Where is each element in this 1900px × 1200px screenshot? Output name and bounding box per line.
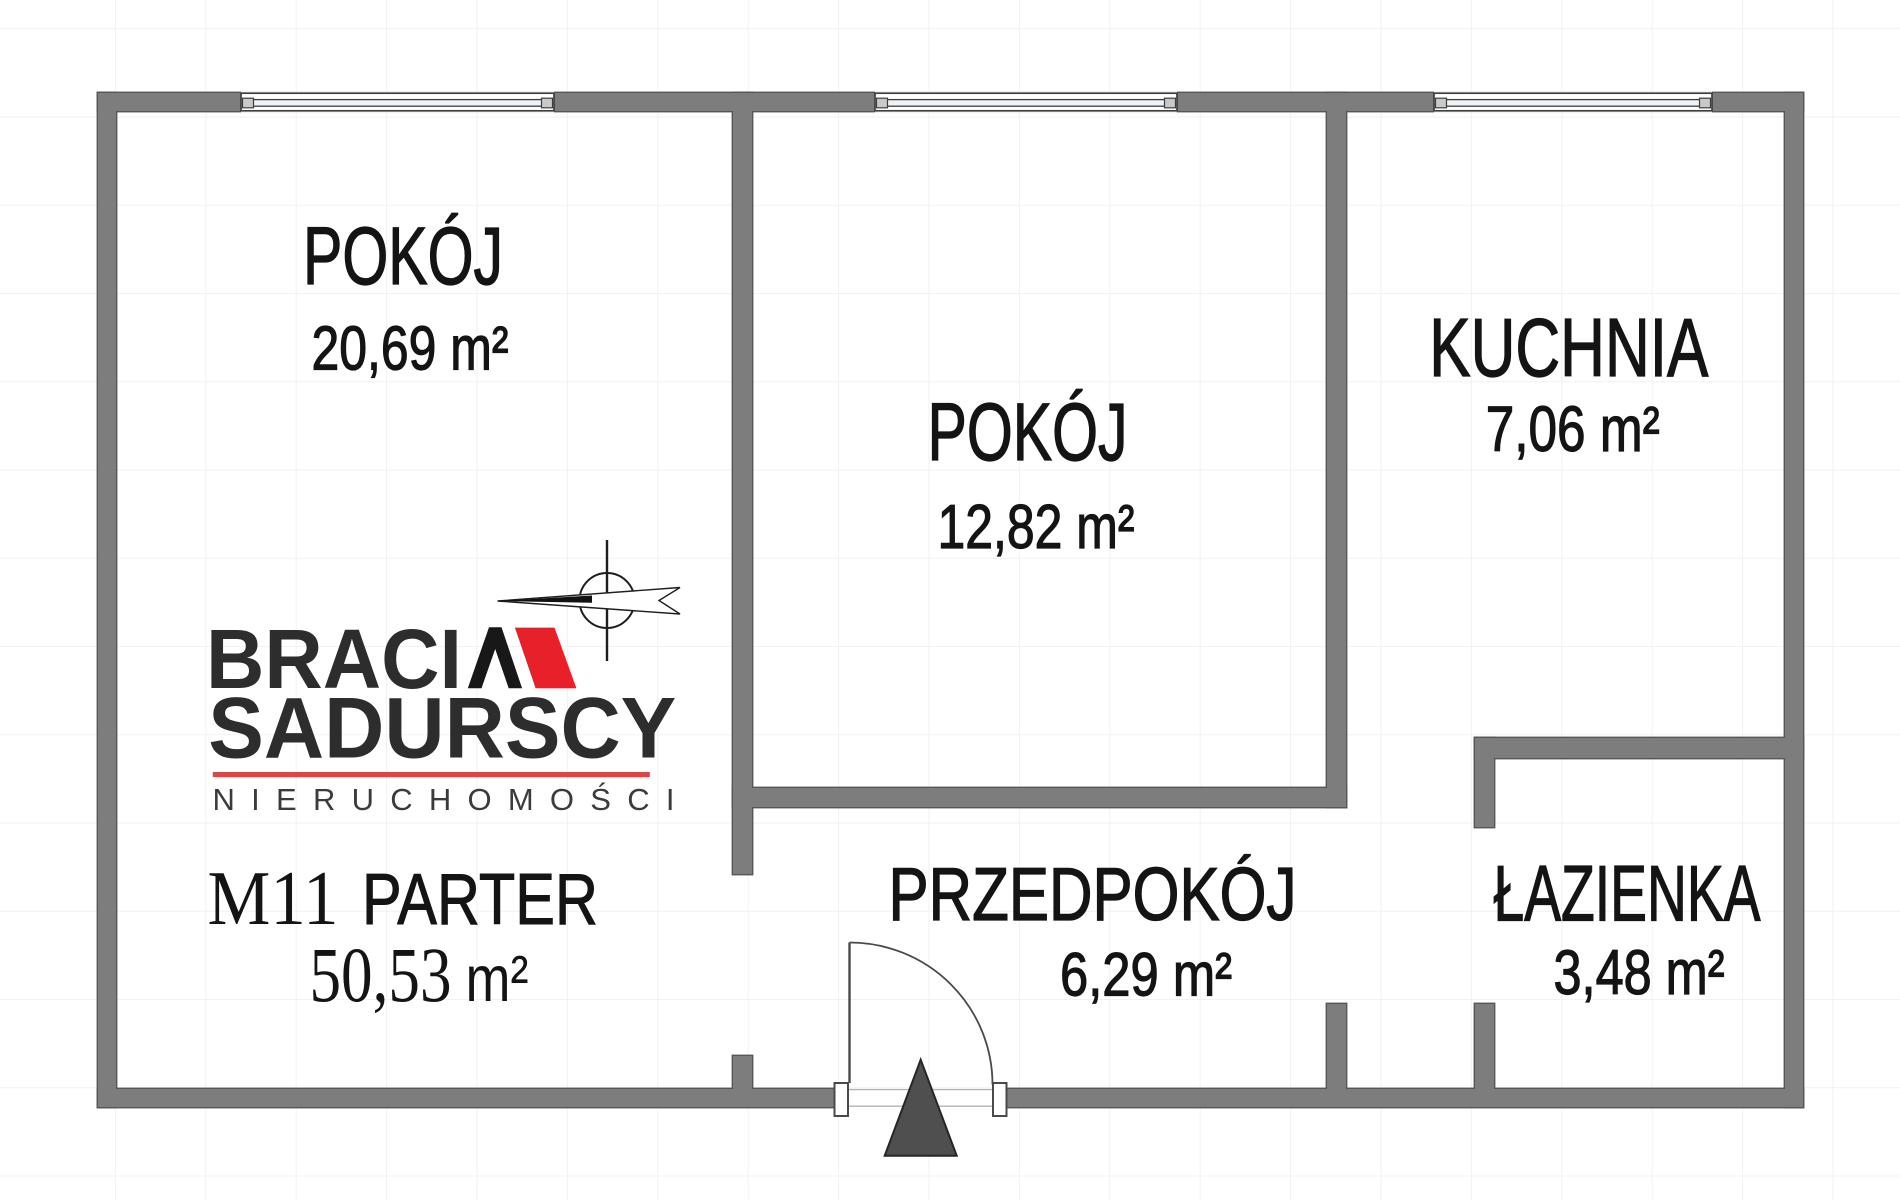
svg-text:POKÓJ: POKÓJ xyxy=(928,387,1128,478)
svg-text:m²: m² xyxy=(466,942,529,1015)
svg-text:NIERUCHOMOŚCI: NIERUCHOMOŚCI xyxy=(213,781,675,817)
svg-text:PARTER: PARTER xyxy=(362,860,598,940)
svg-text:KUCHNIA: KUCHNIA xyxy=(1429,302,1708,394)
svg-text:50,53: 50,53 xyxy=(310,931,452,1018)
svg-text:12,82 m²: 12,82 m² xyxy=(938,493,1135,562)
svg-text:M11: M11 xyxy=(208,855,339,941)
svg-text:POKÓJ: POKÓJ xyxy=(303,211,503,302)
svg-text:7,06 m²: 7,06 m² xyxy=(1486,393,1660,465)
svg-text:ŁAZIENKA: ŁAZIENKA xyxy=(1494,850,1761,938)
svg-text:20,69 m²: 20,69 m² xyxy=(312,315,509,384)
svg-text:SADURSCY: SADURSCY xyxy=(208,681,676,777)
svg-text:3,48 m²: 3,48 m² xyxy=(1554,938,1725,1008)
svg-text:PRZEDPOKÓJ: PRZEDPOKÓJ xyxy=(889,852,1297,936)
svg-text:6,29 m²: 6,29 m² xyxy=(1060,941,1232,1009)
